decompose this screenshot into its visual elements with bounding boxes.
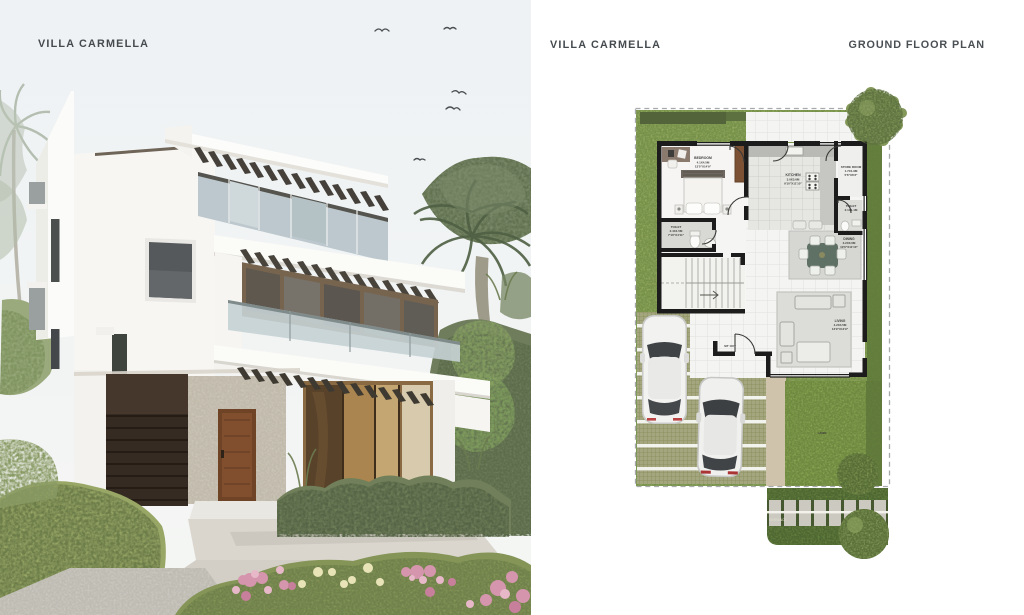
- svg-text:10'6"X11'10": 10'6"X11'10": [840, 245, 858, 249]
- svg-text:KITCHEN: KITCHEN: [785, 173, 801, 177]
- svg-text:5'6"X6'3": 5'6"X6'3": [845, 173, 859, 177]
- svg-text:VILLA CARMELLA: VILLA CARMELLA: [550, 39, 661, 51]
- svg-text:9'10"X11'10": 9'10"X11'10": [784, 181, 802, 185]
- svg-text:VILLA CARMELLA: VILLA CARMELLA: [38, 38, 149, 50]
- svg-text:ENTRANCE: ENTRANCE: [769, 518, 787, 522]
- svg-text:SIT OUT: SIT OUT: [724, 344, 736, 348]
- svg-text:2.1X1.1M: 2.1X1.1M: [845, 208, 858, 212]
- svg-text:BEDROOM: BEDROOM: [694, 156, 712, 160]
- svg-text:LAWN: LAWN: [818, 431, 827, 435]
- svg-text:13'9"X14'9": 13'9"X14'9": [832, 327, 849, 331]
- svg-text:GROUND FLOOR PLAN: GROUND FLOOR PLAN: [849, 39, 985, 51]
- svg-text:13'5"X14'9": 13'5"X14'9": [695, 164, 712, 168]
- svg-text:7'10"X4'11": 7'10"X4'11": [668, 233, 685, 237]
